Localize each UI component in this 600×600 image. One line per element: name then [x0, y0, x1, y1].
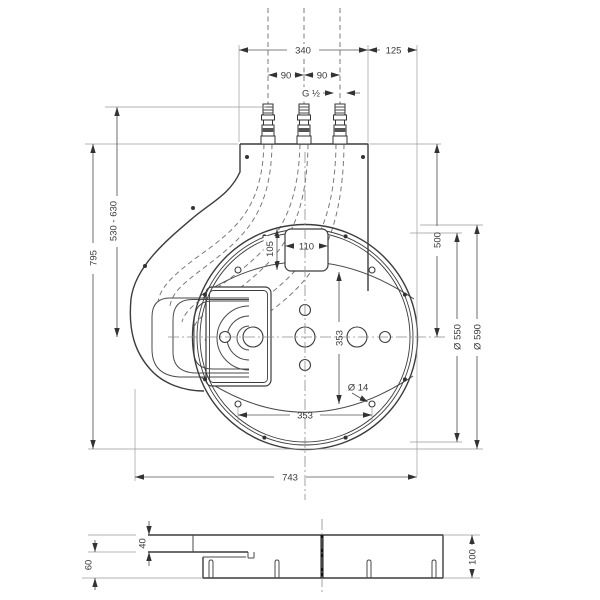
housing-screw: [143, 264, 147, 268]
dim-top-width: 340: [239, 44, 368, 57]
dim-inner-diameter: Ø 550: [453, 233, 464, 442]
dim-side-total-height: 100: [468, 535, 479, 578]
dim-label-supply-height: 530 - 630: [109, 201, 120, 241]
dim-thread: G ½: [299, 87, 360, 100]
pipe-connectors: [261, 104, 347, 144]
dim-label-pipe-gap-left: 90: [281, 71, 292, 82]
dim-label-cutout-width: 110: [299, 242, 314, 253]
plate-screw: [245, 155, 249, 159]
dim-label-top-width: 340: [295, 46, 311, 57]
dim-label-side-total-height: 100: [468, 549, 479, 565]
dim-label-right-offset: 125: [386, 46, 402, 57]
pipe-connector: [333, 104, 347, 144]
foot-tab: [275, 560, 279, 578]
foot-tab-right: [432, 560, 436, 578]
dim-right-offset: 125: [368, 44, 417, 57]
dim-supply-height: 530 - 630: [107, 107, 120, 337]
corner-hole: [369, 267, 375, 273]
corner-hole: [235, 267, 241, 273]
side-outline: [142, 519, 443, 592]
dim-label-deck-thickness: 40: [138, 538, 149, 549]
dim-outer-diameter: Ø 590: [473, 225, 484, 449]
side-deck-bar: [142, 535, 248, 552]
dim-deck-thickness: 40: [136, 521, 152, 566]
dim-label-pipe-gap-right: 90: [317, 71, 328, 82]
technical-drawing: 340 125 90 90 G ½: [0, 0, 600, 600]
rim-screw: [262, 436, 266, 440]
pipe-connector: [297, 104, 311, 144]
dim-label-thread: G ½: [302, 89, 320, 100]
dim-label-hole-diameter: Ø 14: [348, 383, 369, 394]
rim-screw: [203, 293, 207, 297]
rim-screw: [403, 377, 407, 381]
side-body: [142, 535, 443, 578]
side-view: 40 60 100: [82, 519, 480, 592]
dim-hole-spacing-horizontal: 353: [238, 411, 372, 422]
dim-label-hole-spacing-vertical: 353: [335, 330, 346, 346]
dimensions-front: 340 125 90 90 G ½: [85, 44, 484, 484]
rim-screw: [344, 234, 348, 238]
rim-screw: [403, 293, 407, 297]
pipe-bend: [158, 144, 264, 302]
front-view: [130, 8, 448, 500]
dim-label-plate-to-center: 500: [433, 232, 444, 248]
dim-label-overall-width: 743: [282, 473, 298, 484]
dim-plate-to-center: 500: [433, 144, 444, 337]
corner-hole: [369, 401, 375, 407]
dim-label-base-height: 60: [84, 560, 95, 571]
foot-tab: [209, 560, 213, 578]
deck-step: [203, 552, 254, 558]
dim-label-cutout-depth: 105: [265, 241, 276, 257]
plate-screw: [361, 155, 365, 159]
drawing-page: 340 125 90 90 G ½: [0, 0, 600, 600]
dim-label-outer-diameter: Ø 590: [473, 324, 484, 350]
dim-base-height: 60: [84, 540, 98, 590]
pipe-connector: [261, 104, 275, 144]
dim-overall-width: 743: [135, 473, 417, 484]
rim-screw: [203, 377, 207, 381]
housing-screw: [191, 206, 195, 210]
dim-label-overall-height: 795: [89, 250, 100, 266]
dim-label-inner-diameter: Ø 550: [453, 324, 464, 350]
dim-label-hole-spacing-horizontal: 353: [297, 411, 313, 422]
foot-tab: [367, 560, 371, 578]
dim-hole-diameter: Ø 14: [343, 381, 373, 402]
dimensions-side: 40 60 100: [82, 521, 480, 590]
corner-hole: [235, 401, 241, 407]
dim-overall-height: 795: [89, 144, 100, 449]
rim-screw: [344, 436, 348, 440]
